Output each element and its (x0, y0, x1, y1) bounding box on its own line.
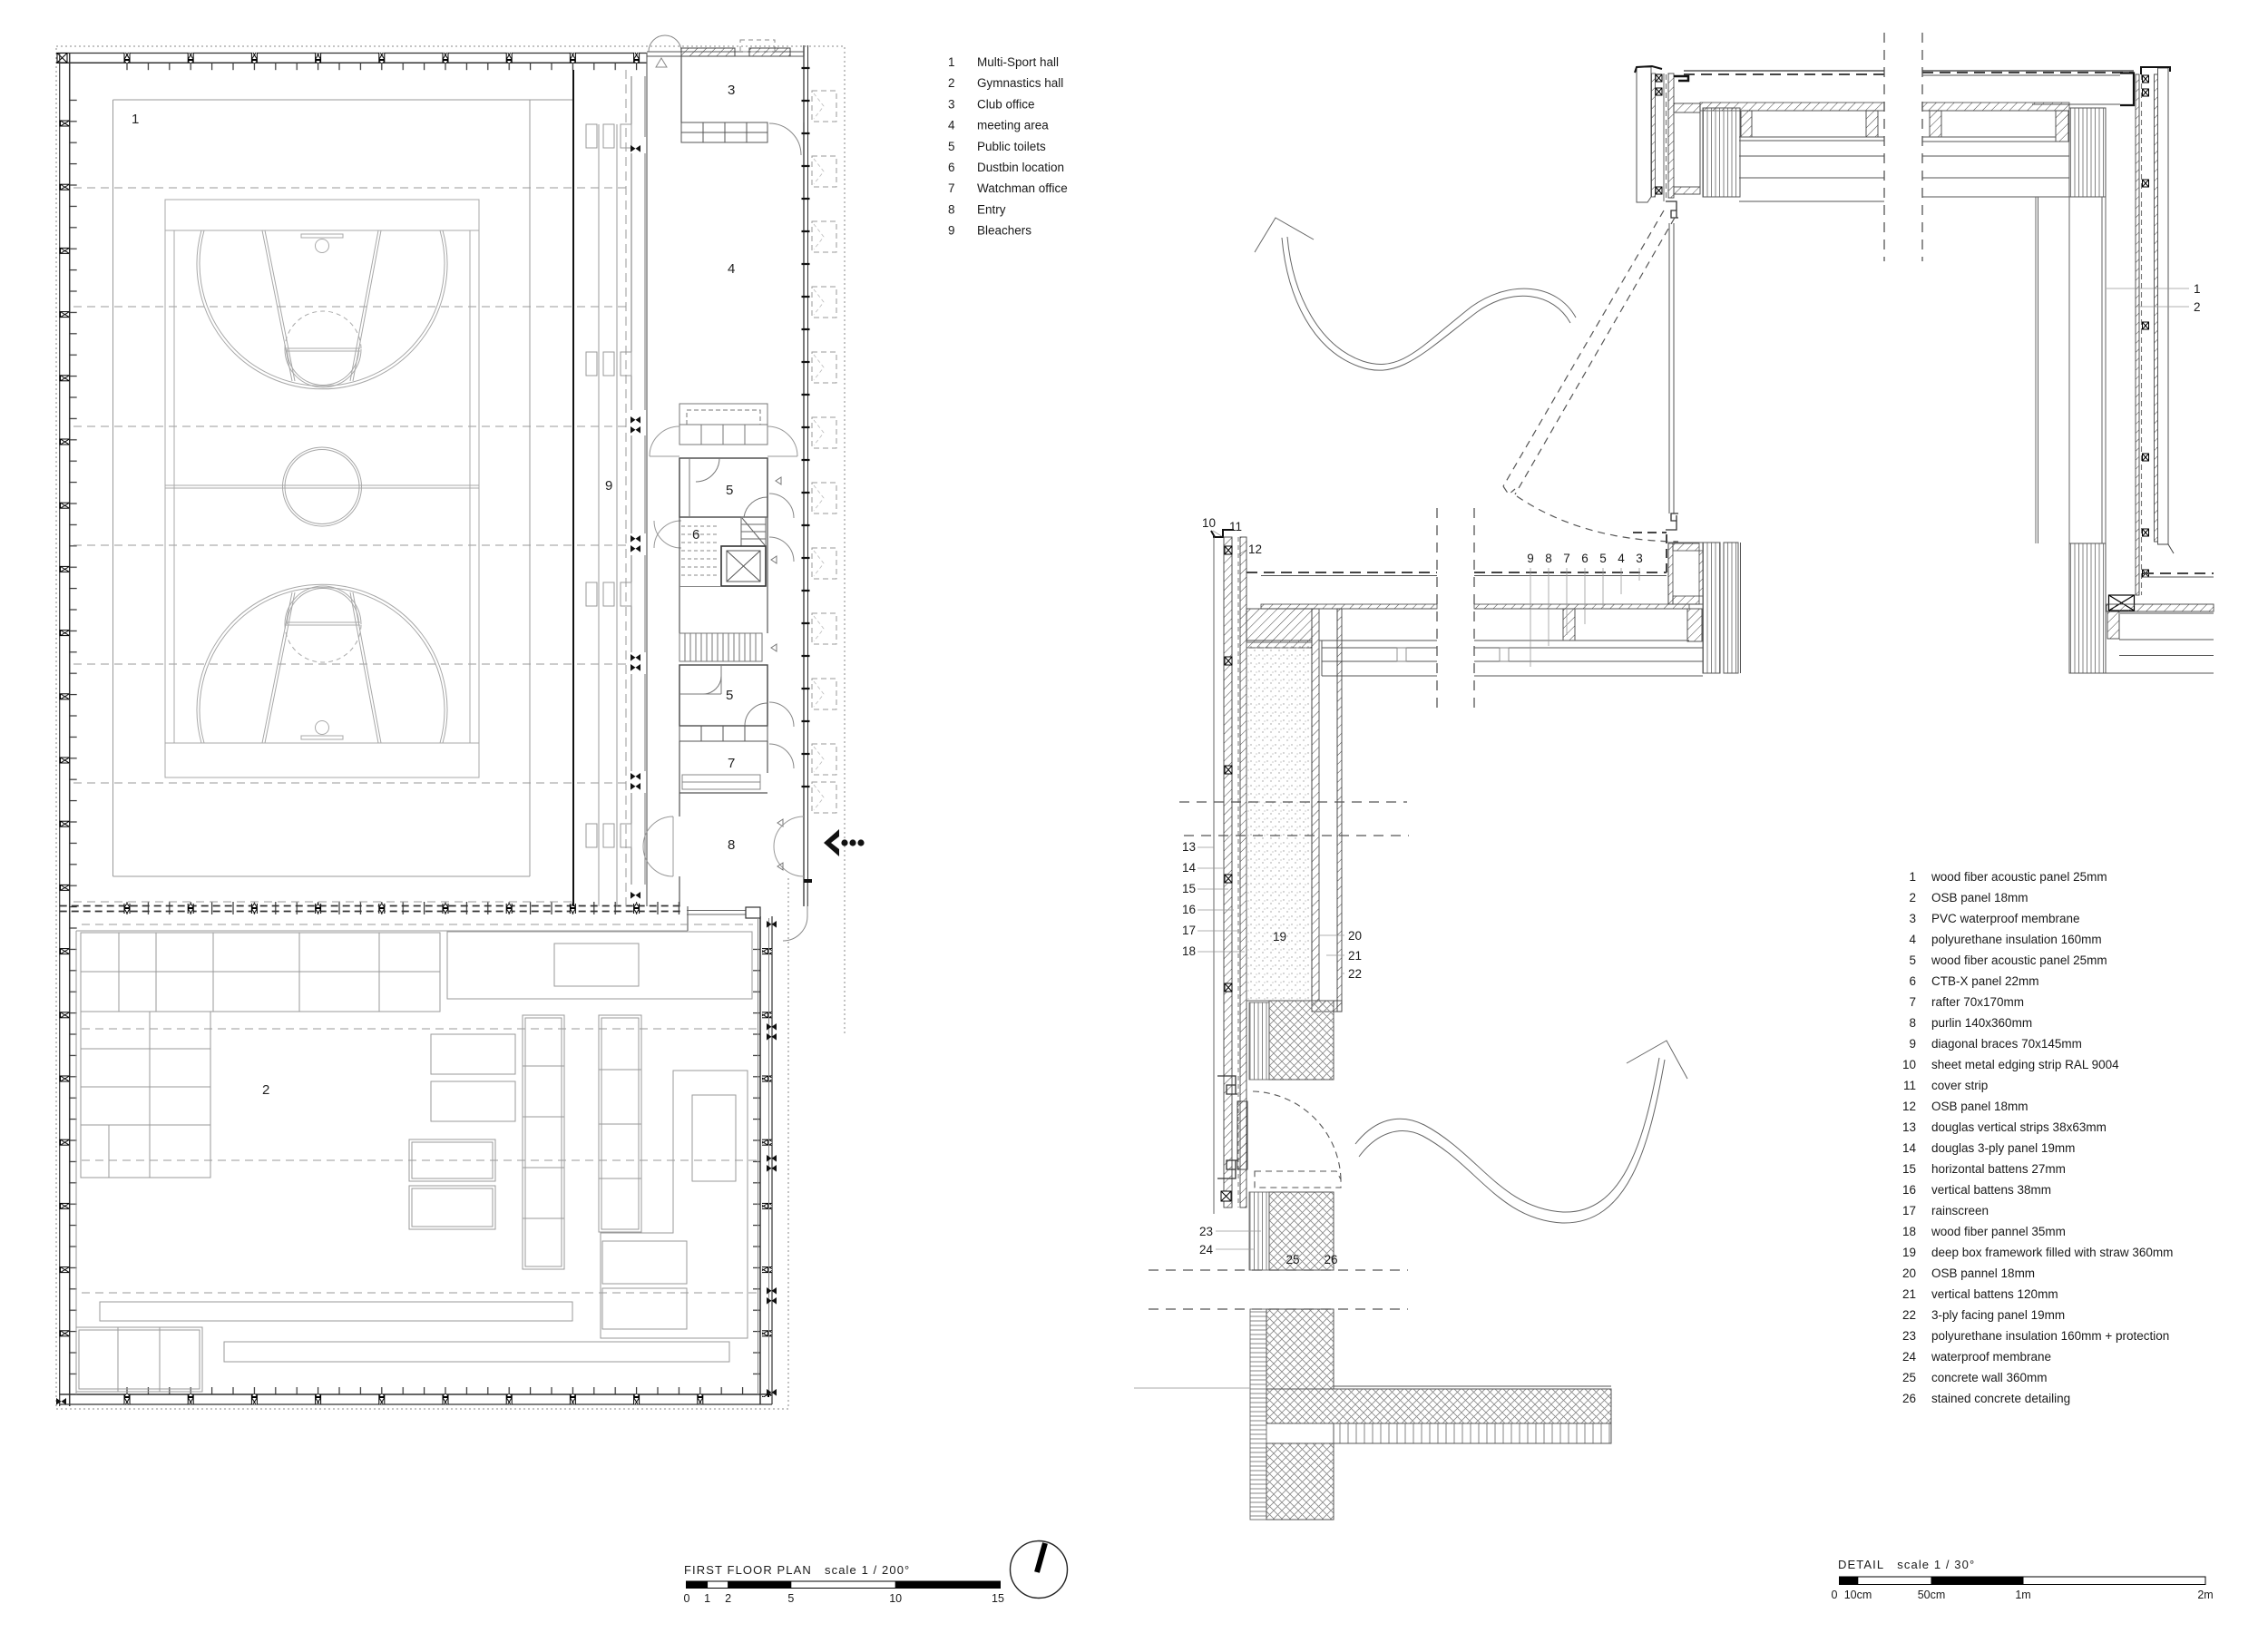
svg-text:5: 5 (726, 688, 733, 703)
svg-text:10: 10 (1202, 516, 1216, 530)
svg-text:8: 8 (1909, 1016, 1916, 1030)
svg-text:2: 2 (948, 76, 955, 90)
svg-text:OSB panel 18mm: OSB panel 18mm (1931, 891, 2028, 905)
svg-text:20: 20 (1348, 929, 1362, 943)
svg-text:OSB pannel 18mm: OSB pannel 18mm (1931, 1266, 2035, 1280)
svg-text:deep box framework filled with: deep box framework filled with straw 360… (1931, 1246, 2173, 1259)
svg-text:wood fiber acoustic panel 25mm: wood fiber acoustic panel 25mm (1931, 870, 2107, 884)
svg-text:13: 13 (1182, 840, 1196, 854)
svg-text:13: 13 (1902, 1120, 1916, 1134)
svg-text:horizontal battens 27mm: horizontal battens 27mm (1931, 1162, 2066, 1176)
svg-text:19: 19 (1902, 1246, 1916, 1259)
svg-text:0: 0 (1832, 1589, 1838, 1601)
svg-text:9: 9 (605, 478, 612, 494)
svg-text:3: 3 (948, 97, 955, 111)
svg-text:polyurethane insulation 160mm: polyurethane insulation 160mm (1931, 933, 2102, 946)
svg-text:15: 15 (1902, 1162, 1916, 1176)
svg-text:sheet metal edging strip RAL 9: sheet metal edging strip RAL 9004 (1931, 1058, 2119, 1071)
svg-text:18: 18 (1182, 944, 1196, 958)
svg-text:FIRST FLOOR PLAN scale 1 / 2: FIRST FLOOR PLAN scale 1 / 200° (684, 1563, 910, 1577)
svg-text:24: 24 (1199, 1243, 1214, 1257)
svg-text:1: 1 (948, 55, 955, 69)
svg-text:23: 23 (1199, 1225, 1213, 1238)
svg-text:4: 4 (1909, 933, 1916, 946)
svg-text:25: 25 (1286, 1253, 1299, 1266)
svg-text:10: 10 (889, 1592, 902, 1605)
svg-text:16: 16 (1182, 903, 1196, 916)
svg-text:stained concrete detailing: stained concrete detailing (1931, 1392, 2070, 1405)
svg-text:16: 16 (1902, 1183, 1916, 1197)
svg-text:21: 21 (1902, 1287, 1916, 1301)
svg-text:1: 1 (1909, 870, 1916, 884)
svg-text:meeting area: meeting area (977, 119, 1049, 132)
svg-text:50cm: 50cm (1918, 1589, 1946, 1601)
svg-text:OSB panel 18mm: OSB panel 18mm (1931, 1100, 2028, 1113)
svg-text:19: 19 (1273, 930, 1286, 944)
svg-text:waterproof membrane: waterproof membrane (1931, 1350, 2051, 1364)
svg-text:1m: 1m (2015, 1589, 2030, 1601)
svg-text:10: 10 (1902, 1058, 1916, 1071)
svg-text:3: 3 (1909, 912, 1916, 925)
svg-text:22: 22 (1348, 967, 1362, 981)
svg-text:Bleachers: Bleachers (977, 224, 1031, 238)
svg-text:17: 17 (1182, 924, 1196, 937)
svg-text:24: 24 (1902, 1350, 1917, 1364)
svg-text:purlin 140x360mm: purlin 140x360mm (1931, 1016, 2032, 1030)
svg-text:17: 17 (1902, 1204, 1916, 1217)
svg-text:concrete wall 360mm: concrete wall 360mm (1931, 1371, 2048, 1384)
svg-text:14: 14 (1182, 861, 1197, 875)
svg-text:cover strip: cover strip (1931, 1079, 1988, 1092)
svg-text:9: 9 (1527, 552, 1534, 565)
svg-text:4: 4 (948, 119, 955, 132)
svg-text:rainscreen: rainscreen (1931, 1204, 1989, 1217)
svg-text:polyurethane insulation 160mm: polyurethane insulation 160mm + protecti… (1931, 1329, 2169, 1343)
svg-text:wood fiber acoustic panel 25mm: wood fiber acoustic panel 25mm (1931, 953, 2107, 967)
svg-text:12: 12 (1902, 1100, 1916, 1113)
svg-text:7: 7 (728, 756, 735, 771)
svg-text:douglas 3-ply panel 19mm: douglas 3-ply panel 19mm (1931, 1141, 2075, 1155)
svg-text:Multi-Sport hall: Multi-Sport hall (977, 55, 1059, 69)
svg-text:6: 6 (1909, 974, 1916, 988)
svg-text:diagonal braces 70x145mm: diagonal braces 70x145mm (1931, 1037, 2082, 1051)
svg-text:3-ply facing panel 19mm: 3-ply facing panel 19mm (1931, 1308, 2065, 1322)
svg-text:1: 1 (132, 112, 139, 127)
svg-text:15: 15 (1182, 882, 1196, 895)
svg-text:8: 8 (1545, 552, 1552, 565)
svg-text:DETAIL scale 1 / 30°: DETAIL scale 1 / 30° (1838, 1558, 1975, 1571)
svg-text:15: 15 (992, 1592, 1004, 1605)
svg-text:5: 5 (948, 140, 955, 153)
svg-text:PVC waterproof membrane: PVC waterproof membrane (1931, 912, 2080, 925)
svg-text:Dustbin location: Dustbin location (977, 161, 1064, 174)
svg-text:3: 3 (728, 83, 735, 98)
svg-text:11: 11 (1229, 520, 1242, 533)
svg-text:1: 1 (704, 1592, 710, 1605)
svg-text:5: 5 (726, 483, 733, 498)
svg-text:26: 26 (1902, 1392, 1916, 1405)
svg-text:5: 5 (1909, 953, 1916, 967)
svg-text:12: 12 (1248, 543, 1262, 556)
svg-text:2: 2 (725, 1592, 731, 1605)
svg-text:3: 3 (1636, 552, 1643, 565)
svg-text:8: 8 (948, 202, 955, 216)
svg-text:1: 1 (2194, 282, 2201, 296)
svg-text:26: 26 (1324, 1253, 1337, 1266)
svg-text:vertical battens 38mm: vertical battens 38mm (1931, 1183, 2051, 1197)
svg-text:rafter 70x170mm: rafter 70x170mm (1931, 995, 2024, 1009)
svg-text:douglas vertical strips 38x63m: douglas vertical strips 38x63mm (1931, 1120, 2107, 1134)
svg-text:25: 25 (1902, 1371, 1916, 1384)
svg-text:Entry: Entry (977, 202, 1006, 216)
svg-text:vertical battens 120mm: vertical battens 120mm (1931, 1287, 2058, 1301)
svg-text:2: 2 (262, 1082, 269, 1098)
svg-text:4: 4 (728, 261, 735, 277)
svg-text:18: 18 (1902, 1225, 1916, 1238)
svg-text:8: 8 (728, 837, 735, 853)
svg-text:6: 6 (1581, 552, 1589, 565)
svg-text:Club office: Club office (977, 97, 1035, 111)
svg-text:7: 7 (1563, 552, 1570, 565)
svg-text:7: 7 (948, 181, 955, 195)
svg-text:wood fiber pannel 35mm: wood fiber pannel 35mm (1931, 1225, 2066, 1238)
svg-text:21: 21 (1348, 949, 1362, 963)
svg-text:0: 0 (684, 1592, 690, 1605)
svg-text:5: 5 (787, 1592, 794, 1605)
svg-text:9: 9 (1909, 1037, 1916, 1051)
svg-text:20: 20 (1902, 1266, 1916, 1280)
svg-text:7: 7 (1909, 995, 1916, 1009)
svg-text:2m: 2m (2197, 1589, 2213, 1601)
svg-text:10cm: 10cm (1844, 1589, 1872, 1601)
svg-text:Gymnastics hall: Gymnastics hall (977, 76, 1063, 90)
svg-text:Public toilets: Public toilets (977, 140, 1046, 153)
svg-text:4: 4 (1618, 552, 1625, 565)
svg-text:2: 2 (2194, 300, 2201, 314)
svg-text:23: 23 (1902, 1329, 1916, 1343)
svg-text:5: 5 (1599, 552, 1607, 565)
svg-text:2: 2 (1909, 891, 1916, 905)
svg-text:22: 22 (1902, 1308, 1916, 1322)
svg-text:9: 9 (948, 224, 955, 238)
svg-text:6: 6 (948, 161, 955, 174)
svg-text:Watchman office: Watchman office (977, 181, 1068, 195)
svg-text:11: 11 (1903, 1079, 1916, 1092)
svg-text:CTB-X panel 22mm: CTB-X panel 22mm (1931, 974, 2039, 988)
svg-text:14: 14 (1902, 1141, 1917, 1155)
